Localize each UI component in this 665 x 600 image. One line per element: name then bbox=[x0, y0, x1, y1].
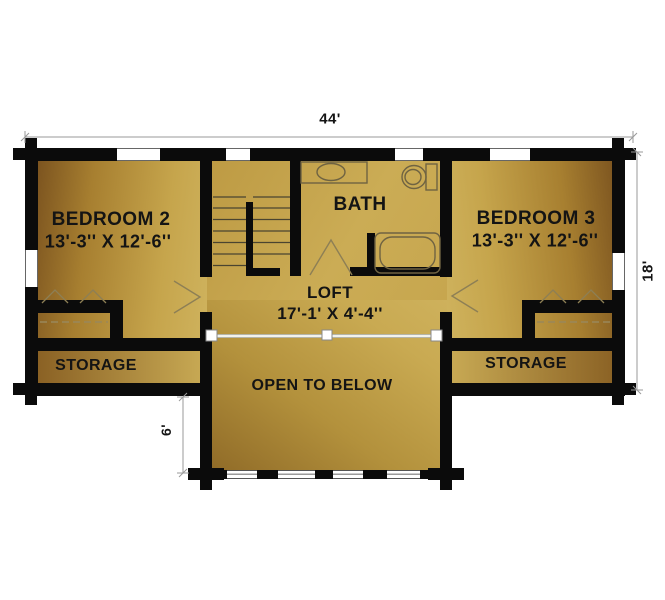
dim-18ft-label: 18' bbox=[640, 260, 657, 281]
stair-treads bbox=[213, 197, 290, 266]
bedroom2-door bbox=[174, 281, 200, 313]
window-bedroom3-right bbox=[612, 253, 625, 290]
floor-plan: BEDROOM 2 13'-3'' X 12'-6'' BATH BEDROOM… bbox=[0, 0, 665, 600]
bath-label: BATH bbox=[334, 194, 387, 216]
storage-right-label: STORAGE bbox=[485, 355, 567, 373]
dim-44ft-label: 44' bbox=[319, 111, 340, 128]
storage-left-label: STORAGE bbox=[55, 357, 137, 375]
window-bedroom2-top bbox=[117, 148, 160, 161]
dim-6ft-line bbox=[177, 397, 189, 473]
open-to-below-label: OPEN TO BELOW bbox=[252, 377, 393, 395]
window-open-below-2 bbox=[278, 470, 315, 479]
window-open-below-1 bbox=[227, 470, 257, 479]
toilet-tank bbox=[426, 164, 437, 190]
bath-door bbox=[310, 240, 352, 275]
dim-44ft-line bbox=[25, 131, 633, 143]
dim-6ft-label: 6' bbox=[158, 424, 174, 436]
bedroom3-door bbox=[452, 280, 478, 312]
bedroom3-dims: 13'-3'' X 12'-6'' bbox=[472, 231, 599, 252]
loft-dims: 17'-1' X 4'-4'' bbox=[277, 304, 383, 324]
window-open-below-4 bbox=[387, 470, 420, 479]
window-open-below-3 bbox=[333, 470, 363, 479]
bedroom2-label: BEDROOM 2 bbox=[52, 209, 171, 231]
window-bedroom3-top bbox=[490, 148, 530, 161]
bedroom2-dims: 13'-3'' X 12'-6'' bbox=[45, 232, 172, 253]
window-bath-top bbox=[395, 148, 423, 161]
window-stair-top bbox=[226, 148, 250, 161]
loft-label: LOFT bbox=[307, 283, 353, 303]
loft-rail bbox=[206, 330, 442, 341]
bedroom3-label: BEDROOM 3 bbox=[477, 208, 596, 230]
window-bedroom2-left bbox=[25, 250, 38, 287]
sink-icon bbox=[317, 164, 345, 181]
